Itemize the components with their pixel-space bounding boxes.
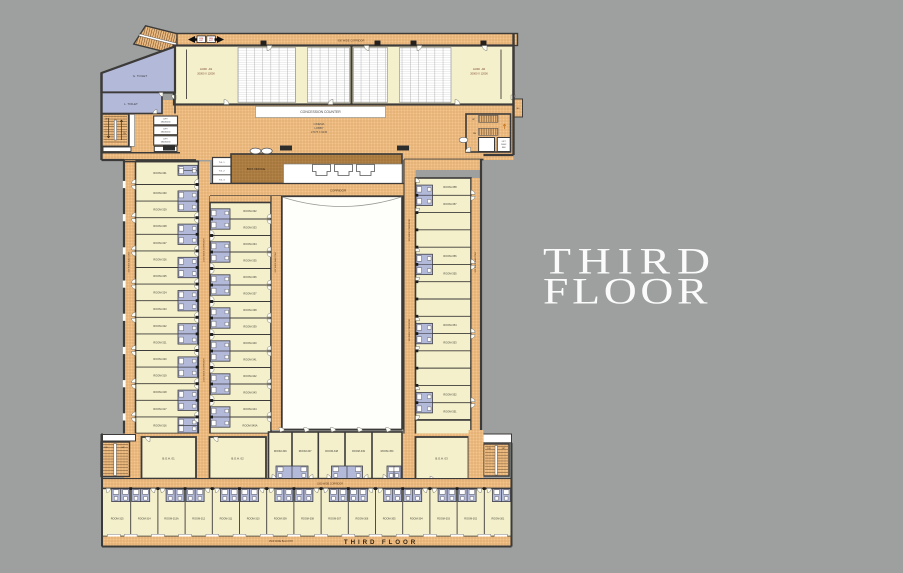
svg-text:BOX OFFICE: BOX OFFICE — [247, 167, 265, 171]
svg-text:ROOM-315: ROOM-315 — [111, 518, 124, 521]
svg-text:ROOM-312: ROOM-312 — [192, 518, 205, 521]
svg-text:ROOM-304: ROOM-304 — [410, 518, 423, 521]
svg-text:ROOM-314: ROOM-314 — [138, 518, 151, 521]
svg-text:ROOM-351: ROOM-351 — [443, 410, 457, 414]
svg-text:ROOM-339: ROOM-339 — [243, 324, 257, 328]
svg-text:1500 WIDE CORRIDOR: 1500 WIDE CORRIDOR — [203, 238, 205, 262]
svg-text:ROOM-338: ROOM-338 — [243, 308, 257, 312]
svg-text:ROOM-320: ROOM-320 — [153, 357, 167, 361]
svg-text:ROOM-336: ROOM-336 — [243, 275, 257, 279]
svg-text:ROOM-325: ROOM-325 — [153, 274, 167, 278]
svg-text:ROOM-335: ROOM-335 — [243, 258, 257, 262]
svg-text:ROOM-311: ROOM-311 — [220, 518, 233, 521]
svg-text:LIFT: LIFT — [163, 139, 168, 141]
svg-text:ROOM-309: ROOM-309 — [274, 518, 287, 521]
svg-text:ROOM-310: ROOM-310 — [247, 518, 260, 521]
svg-text:1500 WIDE CORRIDOR: 1500 WIDE CORRIDOR — [317, 483, 343, 486]
svg-text:ROOM-301: ROOM-301 — [492, 518, 505, 521]
svg-text:900 WIDE CORRIDOR: 900 WIDE CORRIDOR — [338, 39, 365, 43]
svg-text:B.O.H. 02: B.O.H. 02 — [231, 457, 244, 461]
svg-text:LOBBY: LOBBY — [314, 126, 323, 130]
svg-text:ROOM-323: ROOM-323 — [153, 307, 167, 311]
svg-text:ROOM-316: ROOM-316 — [153, 423, 167, 427]
svg-text:L. TOILET: L. TOILET — [124, 102, 138, 106]
svg-text:1500 WIDE BALCONY: 1500 WIDE BALCONY — [269, 540, 294, 543]
svg-text:900 WIDE CORRIDOR: 900 WIDE CORRIDOR — [409, 318, 411, 341]
svg-text:ROOM-344: ROOM-344 — [243, 407, 257, 411]
svg-text:ROOM-319: ROOM-319 — [153, 374, 167, 378]
svg-text:ROOM-322: ROOM-322 — [153, 324, 167, 328]
svg-text:ROOM-331: ROOM-331 — [153, 171, 167, 175]
svg-text:27075 X 9045: 27075 X 9045 — [311, 130, 328, 134]
svg-text:ROOM-303: ROOM-303 — [437, 518, 450, 521]
svg-text:ROOM-354: ROOM-354 — [443, 323, 457, 327]
svg-text:ROOM-334: ROOM-334 — [243, 242, 257, 246]
svg-text:ROOM-305: ROOM-305 — [383, 518, 396, 521]
svg-text:ROOM-343: ROOM-343 — [243, 390, 257, 394]
svg-text:B.O.H. 01: B.O.H. 01 — [162, 457, 175, 461]
svg-text:ROOM-306: ROOM-306 — [356, 518, 369, 521]
svg-text:ROOM-327: ROOM-327 — [153, 241, 167, 245]
svg-text:AUDI -02: AUDI -02 — [473, 67, 486, 71]
svg-text:ROOM-353: ROOM-353 — [443, 340, 457, 344]
svg-text:ROOM-345A: ROOM-345A — [243, 423, 258, 427]
svg-text:ROOM-342: ROOM-342 — [243, 374, 257, 378]
svg-text:ROOM-313A: ROOM-313A — [164, 518, 179, 521]
svg-text:ROOM-337: ROOM-337 — [243, 291, 257, 295]
svg-text:LIFT: LIFT — [163, 119, 168, 121]
svg-text:ROOM-324: ROOM-324 — [153, 291, 167, 295]
svg-text:ROOM-349: ROOM-349 — [352, 450, 365, 453]
svg-text:1800X2000: 1800X2000 — [161, 122, 171, 124]
svg-text:LIFT: LIFT — [163, 129, 168, 131]
svg-text:ROOM-321: ROOM-321 — [153, 340, 167, 344]
svg-text:ROOM-307: ROOM-307 — [328, 518, 341, 521]
svg-text:ROOM-350: ROOM-350 — [381, 450, 394, 453]
svg-text:1800X2000: 1800X2000 — [161, 142, 171, 144]
svg-text:ROOM-358: ROOM-358 — [443, 185, 457, 189]
svg-text:ROOM-340: ROOM-340 — [243, 341, 257, 345]
svg-text:ROOM-302: ROOM-302 — [464, 518, 477, 521]
svg-text:T.G. 3: T.G. 3 — [219, 179, 226, 181]
svg-text:CONCESSION COUNTER: CONCESSION COUNTER — [300, 110, 341, 114]
svg-text:FLOOR: FLOOR — [543, 271, 711, 312]
svg-text:20000 X 12000: 20000 X 12000 — [197, 72, 215, 76]
svg-text:ROOM-328: ROOM-328 — [153, 224, 167, 228]
svg-text:THIRD FLOOR: THIRD FLOOR — [344, 539, 418, 546]
svg-text:ROOM-347: ROOM-347 — [299, 450, 312, 453]
svg-text:ROOM-332: ROOM-332 — [243, 209, 257, 213]
svg-text:ROOM-346: ROOM-346 — [274, 450, 287, 453]
svg-text:EXIT: EXIT — [209, 40, 213, 42]
svg-text:900 WIDE BALCONY: 900 WIDE BALCONY — [274, 251, 277, 273]
svg-text:B.O.H. 03: B.O.H. 03 — [435, 457, 448, 461]
svg-text:EXIT: EXIT — [199, 40, 203, 42]
svg-text:G. TOILET: G. TOILET — [133, 74, 148, 78]
svg-text:CORRIDOR: CORRIDOR — [330, 189, 347, 193]
svg-text:ROOM-355: ROOM-355 — [443, 271, 457, 275]
svg-text:ROOM-333: ROOM-333 — [243, 225, 257, 229]
svg-text:1800: 1800 — [502, 147, 506, 149]
svg-text:ROOM-317: ROOM-317 — [153, 407, 167, 411]
svg-text:ROOM-318: ROOM-318 — [153, 390, 167, 394]
svg-text:ROOM-329: ROOM-329 — [153, 208, 167, 212]
svg-text:ROOM-352: ROOM-352 — [443, 392, 457, 396]
svg-text:900 WIDE BALCONY: 900 WIDE BALCONY — [128, 251, 131, 273]
svg-text:ROOM-308: ROOM-308 — [301, 518, 314, 521]
svg-text:2000X: 2000X — [501, 144, 507, 146]
svg-text:ROOM-357: ROOM-357 — [443, 202, 457, 206]
svg-text:20000 X 12000: 20000 X 12000 — [470, 72, 488, 76]
svg-text:1800X2000: 1800X2000 — [161, 132, 171, 134]
svg-text:T.G. 1: T.G. 1 — [219, 162, 226, 164]
svg-text:ROOM-348: ROOM-348 — [325, 450, 338, 453]
svg-text:ROOM-326: ROOM-326 — [153, 257, 167, 261]
svg-text:AUDI -01: AUDI -01 — [200, 67, 213, 71]
svg-text:T.G. 2: T.G. 2 — [219, 171, 226, 173]
svg-text:900 WIDE CORRIDOR: 900 WIDE CORRIDOR — [409, 218, 411, 241]
svg-text:1500 WIDE CORRIDOR: 1500 WIDE CORRIDOR — [203, 358, 205, 382]
svg-text:ROOM-341: ROOM-341 — [243, 357, 257, 361]
svg-text:ROOM-330: ROOM-330 — [153, 191, 167, 195]
svg-text:ROOM-356: ROOM-356 — [443, 254, 457, 258]
